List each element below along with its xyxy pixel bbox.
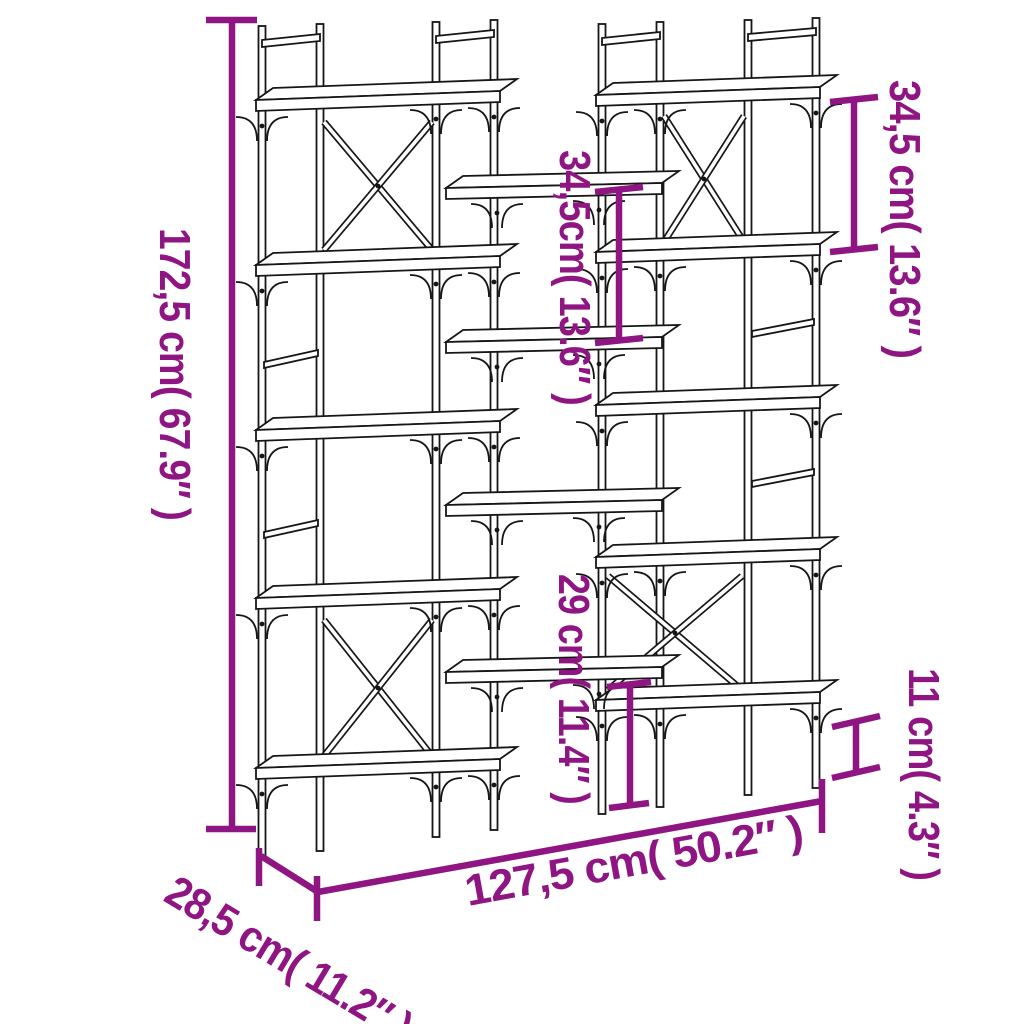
depth-dimension: 28,5 cm( 11.2″ ) — [157, 848, 421, 1024]
height-dimension-label: 172,5 cm( 67.9″ ) — [150, 228, 199, 520]
depth-dimension-label: 28,5 cm( 11.2″ ) — [157, 867, 421, 1024]
shelf-board — [596, 75, 837, 711]
width-dimension-label: 127,5 cm( 50.2″ ) — [461, 806, 806, 915]
top-rails — [602, 28, 816, 45]
cross-brace-upper — [324, 122, 432, 250]
dimension-diagram: 172,5 cm( 67.9″ ) 28,5 cm( 11.2″ ) 127,5… — [0, 0, 1024, 1024]
upper-right-shelf-spacing-label: 34,5 cm( 13.6″ ) — [880, 80, 929, 358]
cross-brace-lower — [324, 620, 432, 756]
middle-shelf-spacing-dimension: 34,5cm( 13.6″ ) — [550, 150, 643, 405]
bottom-clearance-dimension: 11 cm( 4.3″ ) — [832, 668, 948, 880]
middle-shelf-spacing-label: 34,5cm( 13.6″ ) — [550, 150, 599, 405]
corner-brackets — [236, 108, 520, 809]
bottom-clearance-label: 11 cm( 4.3″ ) — [899, 668, 948, 880]
side-rails — [264, 350, 318, 538]
top-rails — [262, 30, 494, 47]
right-tower — [576, 18, 842, 814]
dimension-annotations: 172,5 cm( 67.9″ ) 28,5 cm( 11.2″ ) 127,5… — [150, 20, 948, 1024]
height-dimension: 172,5 cm( 67.9″ ) — [150, 20, 257, 829]
lower-middle-clearance-label: 29 cm( 11.4″ ) — [549, 574, 598, 804]
cross-brace-upper — [664, 116, 744, 242]
upper-right-shelf-spacing-dimension: 34,5 cm( 13.6″ ) — [830, 80, 929, 358]
left-tower — [236, 20, 520, 858]
shelving-unit-illustration: 172,5 cm( 67.9″ ) 28,5 cm( 11.2″ ) 127,5… — [0, 0, 1024, 1024]
